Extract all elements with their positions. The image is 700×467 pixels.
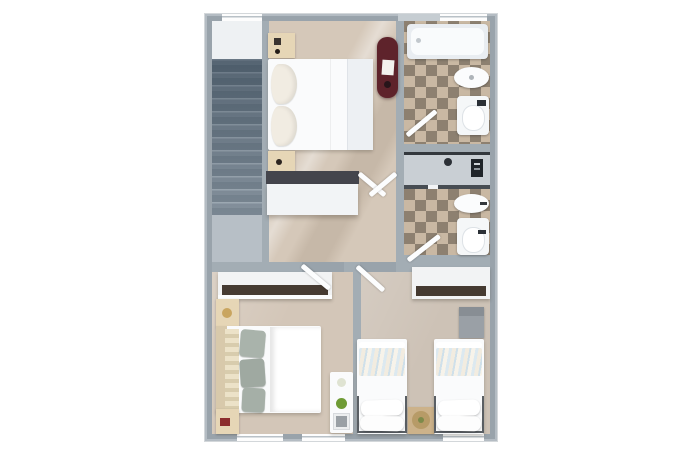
nightstand-item (276, 159, 282, 165)
bathtub (407, 24, 488, 59)
bed-pillow (360, 416, 404, 432)
bed-pillow (271, 106, 297, 146)
toilet-flush (478, 230, 486, 234)
wall-light-segment (398, 14, 440, 21)
red-cabinet (377, 37, 398, 98)
table-lamp (222, 308, 232, 318)
window-bottom-center (302, 434, 345, 441)
master-double-bed (268, 59, 373, 150)
dresser-front (267, 184, 358, 215)
sink-faucet (480, 202, 487, 205)
striped-bolster (225, 329, 239, 410)
toilet-flush (477, 100, 486, 106)
nightstand-item (275, 49, 280, 54)
bathtub-drain (416, 38, 421, 43)
desk (330, 372, 353, 433)
bed-pillow (271, 64, 297, 104)
sink (454, 67, 489, 88)
duvet-fold (270, 327, 321, 412)
shower-back-edge (404, 152, 490, 155)
hall-wall-segment-a (212, 262, 302, 272)
bed-foot-fold (347, 59, 373, 150)
red-book (220, 418, 230, 426)
bed-pillow (239, 329, 266, 358)
bathtub-basin (411, 28, 484, 55)
window-top-bathroom (440, 14, 487, 21)
bed-pillow (437, 416, 481, 432)
bed-pillow (239, 358, 266, 388)
bed-pillow (438, 399, 481, 416)
window-top-stairs (222, 14, 262, 21)
bedside-table (408, 407, 434, 434)
stair-bottom-landing (212, 215, 262, 265)
cabinet-paper (381, 60, 394, 76)
patterned-blanket (436, 348, 482, 376)
shower-panel (471, 159, 483, 177)
dresser-top (266, 171, 359, 184)
small-plant (418, 417, 424, 423)
shower-glass-handle (428, 185, 438, 189)
photo-frame (333, 413, 350, 430)
closet (412, 267, 490, 299)
twin-bed (357, 339, 407, 434)
patterned-blanket (359, 348, 405, 376)
cabinet-bowl (384, 81, 391, 88)
duvet-crease (330, 59, 331, 150)
floor-plan-canvas (0, 0, 700, 467)
sink-drain (469, 75, 474, 80)
desk-plant (336, 398, 347, 409)
stair-top-landing (212, 21, 262, 59)
shower-glass (404, 185, 490, 189)
toilet-seat (462, 105, 485, 131)
bed-pillow (361, 399, 404, 416)
shower-panel-mark (474, 163, 480, 165)
toilet (457, 96, 489, 135)
table-mat (412, 411, 430, 429)
sink (454, 194, 489, 213)
nightstand (268, 33, 295, 58)
nightstand (216, 409, 239, 434)
bathroom-divider-wall (404, 144, 490, 152)
gray-cabinet-top (459, 307, 484, 316)
closet-shelf (416, 286, 486, 296)
left-double-bed (216, 326, 321, 413)
toilet (457, 218, 489, 255)
twin-bed (434, 339, 484, 434)
gray-cabinet (459, 307, 484, 338)
shower-panel-mark (474, 168, 480, 170)
staircase (212, 59, 262, 215)
nightstand-item (274, 38, 281, 45)
photo-image (336, 416, 347, 427)
bed-pillow (241, 387, 265, 412)
closet-shelf (222, 285, 328, 295)
desk-item (337, 378, 346, 387)
window-bottom-right (443, 434, 484, 441)
window-bottom-left (237, 434, 283, 441)
nightstand (216, 299, 239, 328)
shower-head (444, 158, 452, 166)
